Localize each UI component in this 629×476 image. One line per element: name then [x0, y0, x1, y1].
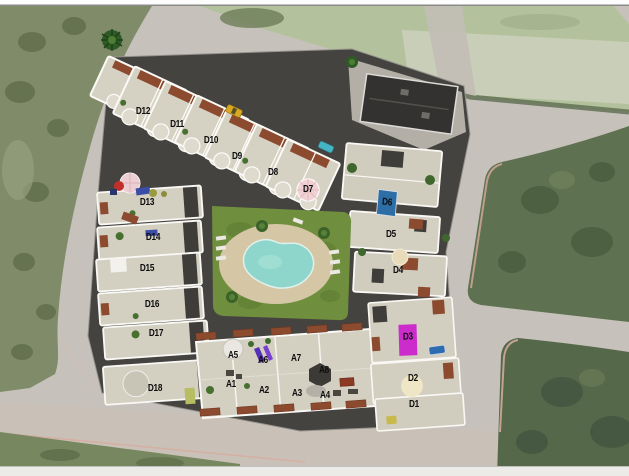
- unit-label-d9: D9: [232, 152, 242, 162]
- unit-label-d14: D14: [146, 233, 160, 243]
- unit-label-d12: D12: [136, 107, 150, 117]
- unit-label-a7: A7: [291, 354, 301, 364]
- unit-label-a2: A2: [259, 386, 269, 396]
- unit-label-d4: D4: [393, 266, 403, 276]
- unit-label-d8: D8: [268, 168, 278, 178]
- unit-label-a8: A8: [319, 366, 329, 376]
- aerial-site-plan-image: D12D11D10D9D8D7D13D14D15D16D17D18D6D5D4D…: [0, 0, 629, 476]
- unit-labels-layer: D12D11D10D9D8D7D13D14D15D16D17D18D6D5D4D…: [0, 0, 629, 476]
- unit-label-d11: D11: [170, 120, 184, 130]
- unit-label-d7: D7: [303, 185, 313, 195]
- unit-label-d2: D2: [408, 374, 418, 384]
- unit-label-d1: D1: [409, 400, 419, 410]
- unit-label-d13: D13: [140, 198, 154, 208]
- unit-label-a3: A3: [292, 389, 302, 399]
- unit-label-d17: D17: [149, 329, 163, 339]
- unit-label-d16: D16: [145, 300, 159, 310]
- unit-label-d18: D18: [148, 384, 162, 394]
- unit-label-d5: D5: [386, 230, 396, 240]
- unit-label-d6: D6: [377, 190, 397, 216]
- unit-label-a4: A4: [320, 391, 330, 401]
- unit-label-d10: D10: [204, 136, 218, 146]
- unit-label-a5: A5: [228, 351, 238, 361]
- unit-label-a6: A6: [258, 356, 268, 366]
- unit-label-d3: D3: [398, 324, 417, 356]
- unit-label-a1: A1: [226, 380, 236, 390]
- unit-label-d15: D15: [140, 264, 154, 274]
